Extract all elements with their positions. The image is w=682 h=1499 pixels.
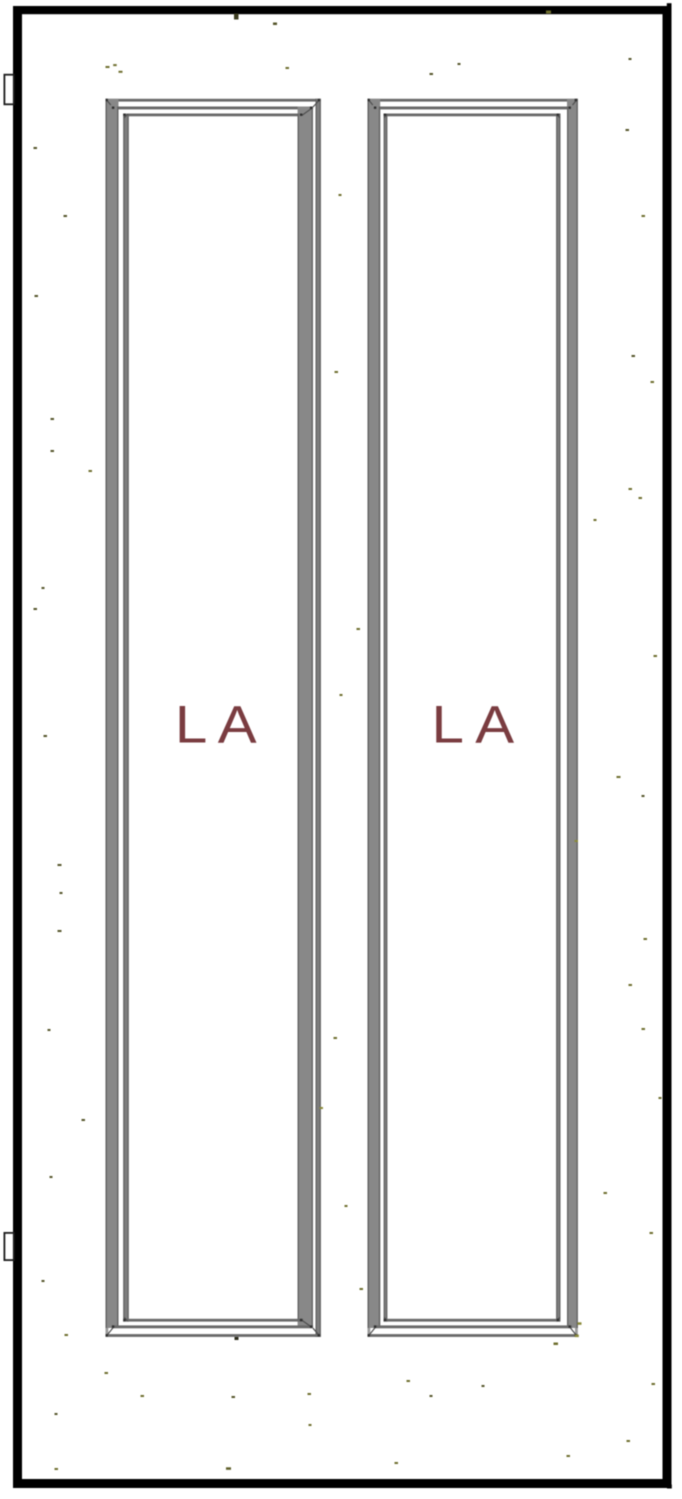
svg-text:L: L: [175, 695, 207, 754]
svg-text:A: A: [218, 695, 258, 754]
svg-text:A: A: [475, 695, 515, 754]
svg-text:L: L: [432, 695, 464, 754]
